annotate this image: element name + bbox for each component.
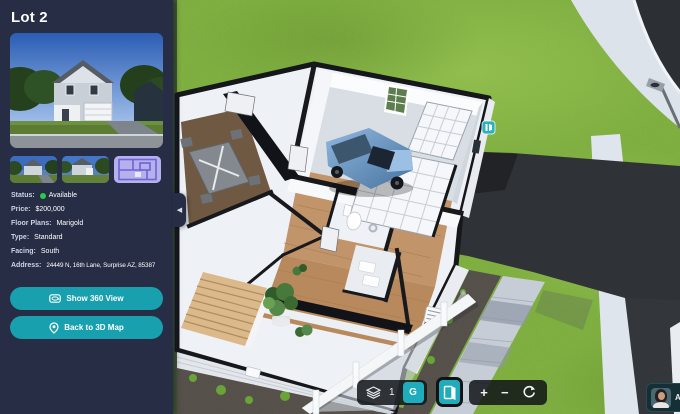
detail-type: Type: Standard: [11, 234, 165, 241]
lot-info-panel: Lot 2: [0, 0, 173, 414]
zoom-in-button[interactable]: +: [478, 386, 490, 399]
detail-facing: Facing: South: [11, 248, 165, 255]
thumbnail-2[interactable]: [62, 156, 109, 183]
thumbnail-1[interactable]: [10, 156, 57, 183]
thumbnail-3-floorplan[interactable]: [114, 156, 161, 183]
status-value: Available: [49, 192, 77, 199]
detail-price: Price: $200,000: [11, 206, 165, 213]
door-icon: [439, 380, 460, 404]
floor-number: 1: [389, 387, 395, 398]
ground-floor-button[interactable]: G: [403, 382, 424, 403]
chevron-left-icon: ◀: [177, 206, 182, 214]
show-360-view-button[interactable]: Show 360 View: [10, 287, 163, 310]
house-photo-image: [10, 33, 163, 148]
detail-status: Status: Available: [11, 192, 165, 199]
refresh-icon: [522, 385, 536, 399]
reset-view-button[interactable]: [520, 385, 538, 401]
door-tool-button[interactable]: [436, 377, 463, 407]
assistant-widget[interactable]: As: [646, 383, 680, 412]
door-marker[interactable]: [482, 121, 495, 134]
main-photo[interactable]: [10, 33, 163, 148]
page-title: Lot 2: [0, 0, 173, 26]
levels-cube-icon: [366, 386, 381, 399]
sidebar-collapse-tab[interactable]: ◀: [173, 193, 186, 227]
detail-floor-plans: Floor Plans: Marigold: [11, 220, 165, 227]
map-pin-icon: [49, 322, 59, 334]
floor-level-control: 1 G: [357, 380, 427, 405]
detail-address: Address: 24449 N, 16th Lane, Surprise AZ…: [11, 262, 165, 269]
show-360-icon: [49, 294, 61, 303]
zoom-out-button[interactable]: −: [499, 386, 511, 399]
app-window: Lot 2: [0, 0, 680, 414]
assistant-label: As: [675, 393, 680, 402]
zoom-control: + −: [469, 380, 547, 405]
garage-window: [384, 84, 409, 116]
assistant-avatar: [651, 388, 671, 408]
photo-thumbnails: [10, 156, 163, 183]
3d-scene[interactable]: [173, 0, 680, 414]
lot-details: Status: Available Price: $200,000 Floor …: [11, 192, 165, 276]
back-to-3d-map-button[interactable]: Back to 3D Map: [10, 316, 163, 339]
status-dot-icon: [40, 193, 46, 199]
